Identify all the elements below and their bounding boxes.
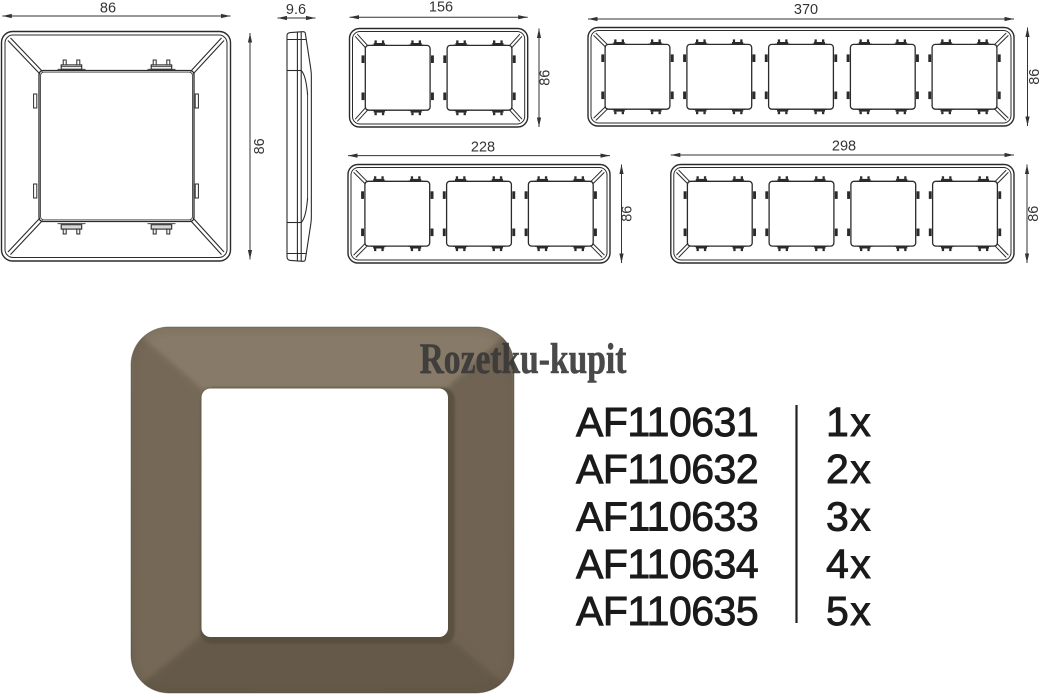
svg-text:AF110631: AF110631 — [576, 399, 758, 445]
svg-text:228: 228 — [471, 139, 495, 155]
svg-text:156: 156 — [429, 0, 453, 16]
svg-text:86: 86 — [100, 1, 116, 17]
svg-text:86: 86 — [252, 138, 268, 154]
svg-text:AF110633: AF110633 — [576, 494, 758, 540]
svg-text:4x: 4x — [826, 541, 872, 587]
svg-text:86: 86 — [1027, 69, 1043, 85]
svg-text:1x: 1x — [826, 399, 872, 445]
svg-text:298: 298 — [832, 139, 856, 155]
svg-text:2x: 2x — [826, 446, 872, 492]
svg-text:Rozetku-kupit: Rozetku-kupit — [420, 336, 627, 383]
svg-text:86: 86 — [1026, 206, 1042, 222]
svg-text:370: 370 — [794, 2, 818, 18]
svg-text:86: 86 — [538, 70, 554, 86]
svg-text:3x: 3x — [826, 494, 872, 540]
svg-text:86: 86 — [620, 206, 636, 222]
svg-text:AF110635: AF110635 — [576, 588, 758, 634]
svg-text:9.6: 9.6 — [286, 2, 306, 18]
svg-text:5x: 5x — [826, 588, 872, 634]
svg-text:AF110634: AF110634 — [576, 541, 758, 587]
svg-text:AF110632: AF110632 — [576, 446, 758, 492]
